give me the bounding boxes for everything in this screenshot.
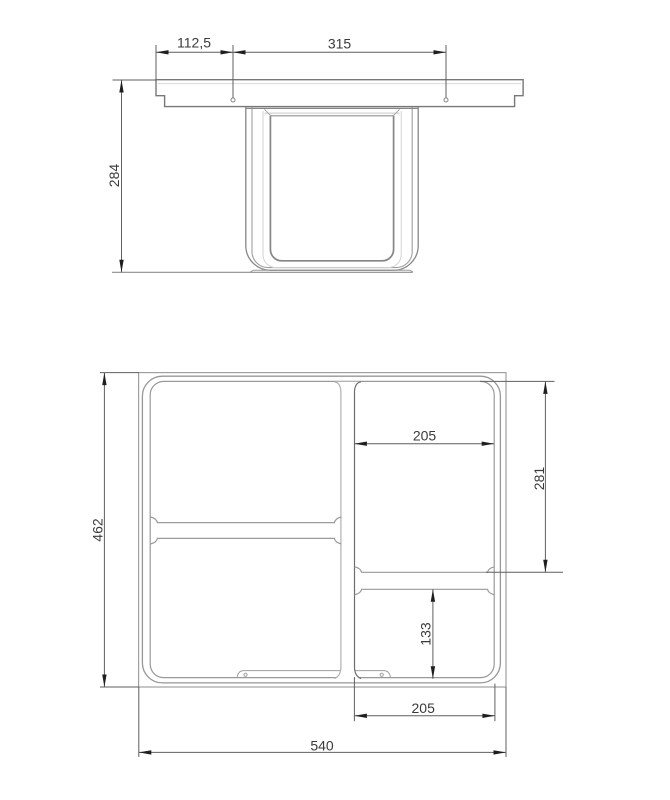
svg-text:205: 205 bbox=[413, 427, 437, 443]
svg-text:284: 284 bbox=[106, 164, 122, 188]
svg-text:112,5: 112,5 bbox=[177, 35, 211, 51]
svg-text:540: 540 bbox=[310, 738, 334, 754]
svg-text:281: 281 bbox=[531, 467, 547, 491]
svg-text:205: 205 bbox=[412, 700, 436, 716]
svg-text:315: 315 bbox=[328, 36, 352, 52]
svg-text:462: 462 bbox=[89, 518, 105, 542]
svg-text:133: 133 bbox=[418, 622, 434, 646]
